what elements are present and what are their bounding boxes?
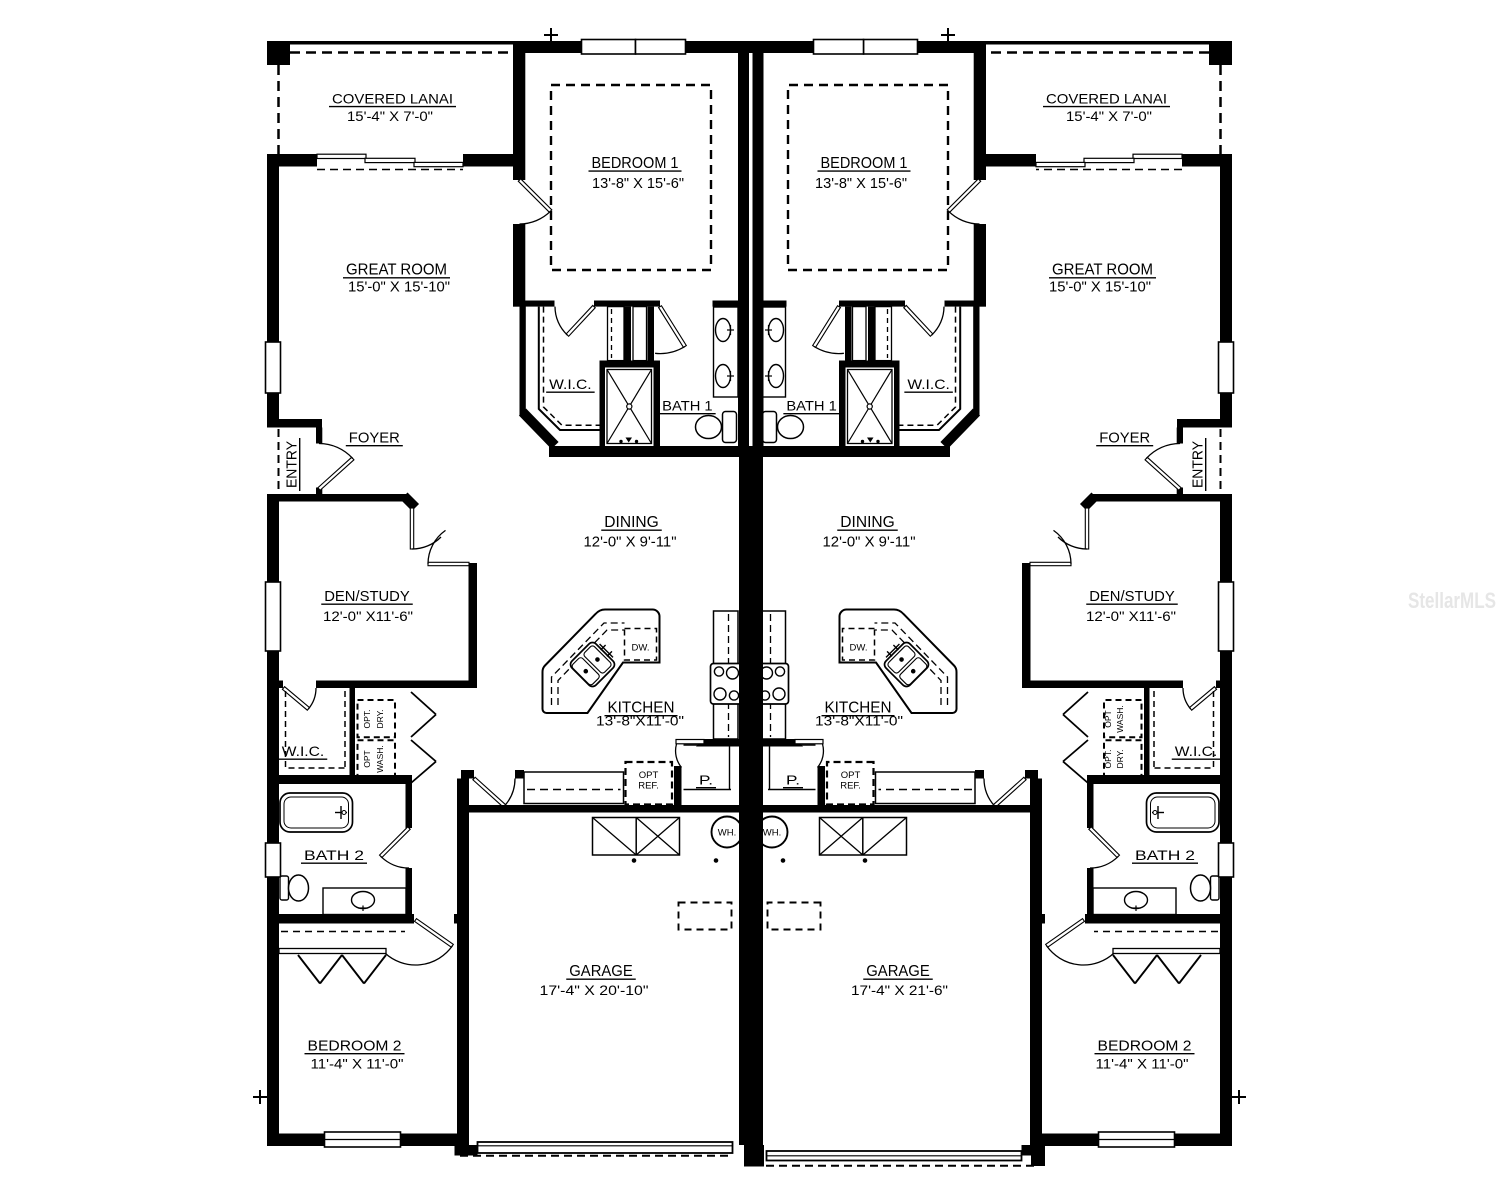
svg-text:17'-4" X 20'-10": 17'-4" X 20'-10"	[540, 982, 649, 998]
svg-text:11'-4" X 11'-0": 11'-4" X 11'-0"	[311, 1056, 404, 1072]
svg-text:13'-8" X 15'-6": 13'-8" X 15'-6"	[815, 176, 907, 192]
svg-text:BEDROOM 1: BEDROOM 1	[592, 155, 679, 172]
svg-text:BEDROOM 2: BEDROOM 2	[1098, 1038, 1192, 1055]
svg-text:DEN/STUDY: DEN/STUDY	[1089, 588, 1175, 605]
svg-text:DEN/STUDY: DEN/STUDY	[324, 588, 410, 605]
svg-text:DRY.: DRY.	[375, 709, 385, 728]
svg-text:13'-8"X11'-0": 13'-8"X11'-0"	[815, 713, 903, 729]
svg-text:12'-0" X11'-6": 12'-0" X11'-6"	[323, 608, 413, 624]
svg-text:WASH.: WASH.	[1115, 705, 1125, 733]
svg-text:12'-0" X11'-6": 12'-0" X11'-6"	[1086, 608, 1176, 624]
svg-text:12'-0" X 9'-11": 12'-0" X 9'-11"	[823, 535, 916, 551]
svg-text:W.I.C.: W.I.C.	[907, 376, 950, 392]
svg-text:W.I.C.: W.I.C.	[282, 743, 325, 759]
svg-text:GREAT ROOM: GREAT ROOM	[346, 262, 447, 279]
svg-text:GARAGE: GARAGE	[866, 963, 930, 980]
svg-text:15'-0" X 15'-10": 15'-0" X 15'-10"	[348, 279, 450, 295]
svg-text:P.: P.	[786, 773, 800, 788]
svg-text:BEDROOM 1: BEDROOM 1	[821, 155, 908, 172]
svg-text:GREAT ROOM: GREAT ROOM	[1052, 262, 1153, 279]
svg-text:DRY.: DRY.	[1115, 749, 1125, 768]
svg-text:BATH 2: BATH 2	[1135, 847, 1195, 863]
svg-text:StellarMLS: StellarMLS	[1408, 588, 1496, 613]
svg-text:W.I.C.: W.I.C.	[549, 376, 592, 392]
svg-text:W.I.C.: W.I.C.	[1175, 743, 1218, 759]
svg-text:OPT: OPT	[362, 750, 372, 767]
svg-text:ENTRY: ENTRY	[284, 441, 301, 488]
svg-text:15'-4" X 7'-0": 15'-4" X 7'-0"	[1066, 108, 1152, 124]
svg-text:DW.: DW.	[632, 643, 650, 654]
svg-text:15'-4" X 7'-0": 15'-4" X 7'-0"	[347, 108, 433, 124]
svg-text:DINING: DINING	[840, 514, 895, 531]
svg-text:11'-4" X 11'-0": 11'-4" X 11'-0"	[1096, 1056, 1189, 1072]
svg-text:BATH 1: BATH 1	[786, 398, 837, 414]
svg-text:15'-0" X 15'-10": 15'-0" X 15'-10"	[1049, 279, 1151, 295]
svg-text:GARAGE: GARAGE	[569, 963, 633, 980]
svg-text:FOYER: FOYER	[1099, 430, 1150, 447]
svg-text:P.: P.	[699, 773, 713, 788]
svg-text:OPT: OPT	[1103, 710, 1113, 727]
svg-text:COVERED LANAI: COVERED LANAI	[1046, 90, 1167, 106]
svg-text:ENTRY: ENTRY	[1190, 441, 1207, 488]
svg-text:13'-8" X 15'-6": 13'-8" X 15'-6"	[592, 176, 684, 192]
svg-text:DINING: DINING	[604, 514, 659, 531]
svg-text:BEDROOM 2: BEDROOM 2	[308, 1038, 402, 1055]
svg-text:BATH 1: BATH 1	[662, 398, 713, 414]
svg-text:17'-4" X 21'-6": 17'-4" X 21'-6"	[851, 982, 948, 998]
svg-text:WH.: WH.	[718, 828, 736, 839]
svg-text:REF.: REF.	[840, 781, 861, 792]
svg-text:DW.: DW.	[850, 643, 868, 654]
svg-text:REF.: REF.	[638, 781, 659, 792]
svg-text:OPT: OPT	[639, 770, 659, 781]
svg-text:WH.: WH.	[763, 828, 781, 839]
svg-text:WASH.: WASH.	[375, 745, 385, 773]
svg-text:12'-0" X 9'-11": 12'-0" X 9'-11"	[584, 535, 677, 551]
svg-text:BATH 2: BATH 2	[304, 847, 364, 863]
svg-text:OPT.: OPT.	[1103, 750, 1113, 769]
svg-text:13'-8"X11'-0": 13'-8"X11'-0"	[596, 713, 684, 729]
svg-text:COVERED LANAI: COVERED LANAI	[332, 90, 453, 106]
svg-text:OPT.: OPT.	[362, 710, 372, 729]
svg-text:OPT: OPT	[841, 770, 861, 781]
svg-text:FOYER: FOYER	[349, 430, 400, 447]
